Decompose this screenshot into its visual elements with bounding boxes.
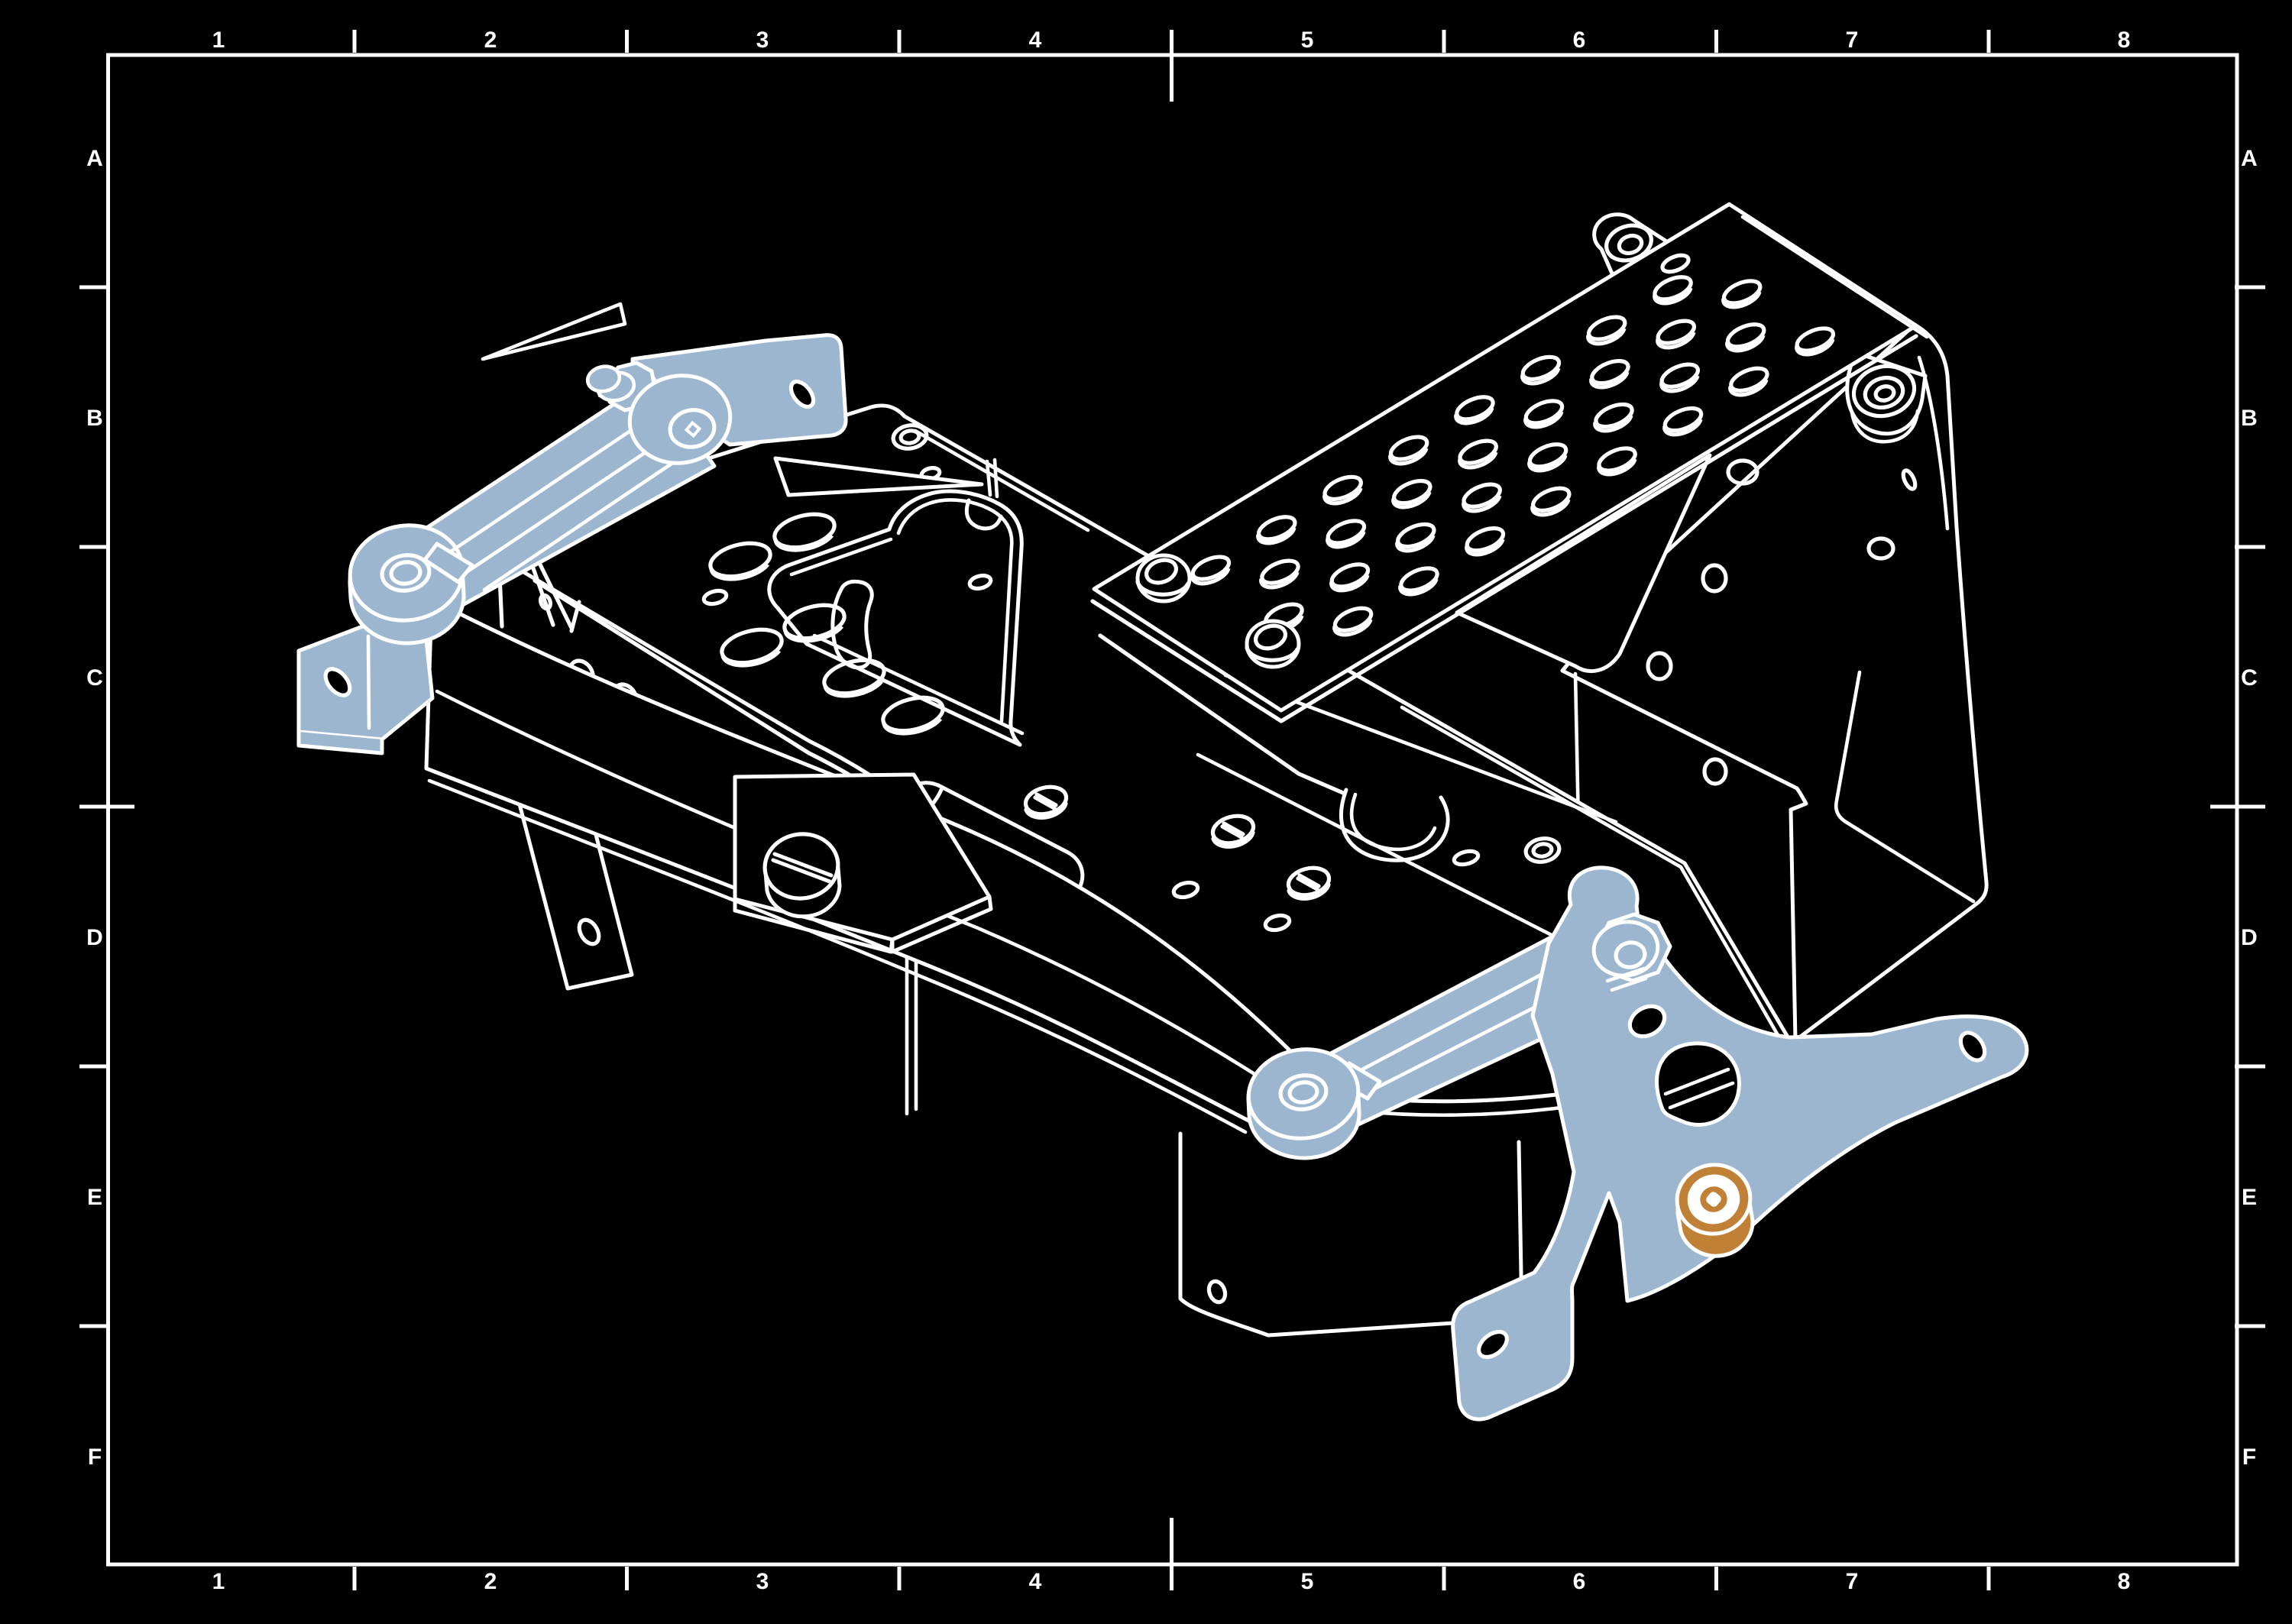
svg-text:4: 4 [1029, 27, 1042, 53]
svg-text:7: 7 [1846, 27, 1859, 53]
svg-text:E: E [2242, 1185, 2257, 1210]
svg-text:7: 7 [1846, 1569, 1859, 1594]
svg-text:2: 2 [484, 27, 497, 53]
svg-text:A: A [86, 146, 103, 171]
svg-text:3: 3 [756, 1569, 769, 1594]
svg-text:8: 8 [2118, 1569, 2131, 1594]
svg-text:E: E [87, 1185, 102, 1210]
svg-text:C: C [86, 665, 103, 691]
svg-text:5: 5 [1301, 1569, 1314, 1594]
svg-text:8: 8 [2118, 27, 2131, 53]
svg-text:4: 4 [1029, 1569, 1042, 1594]
svg-text:D: D [86, 925, 103, 950]
svg-text:A: A [2241, 146, 2258, 171]
svg-text:F: F [2242, 1444, 2256, 1470]
svg-text:C: C [2241, 665, 2258, 691]
svg-text:F: F [88, 1444, 102, 1470]
svg-text:6: 6 [1573, 1569, 1586, 1594]
svg-text:6: 6 [1573, 27, 1586, 53]
svg-text:B: B [86, 406, 103, 431]
svg-text:5: 5 [1301, 27, 1314, 53]
svg-text:1: 1 [212, 27, 225, 53]
svg-text:2: 2 [484, 1569, 497, 1594]
svg-text:B: B [2241, 406, 2258, 431]
svg-text:1: 1 [212, 1569, 225, 1594]
svg-text:3: 3 [756, 27, 769, 53]
svg-text:D: D [2241, 925, 2258, 950]
